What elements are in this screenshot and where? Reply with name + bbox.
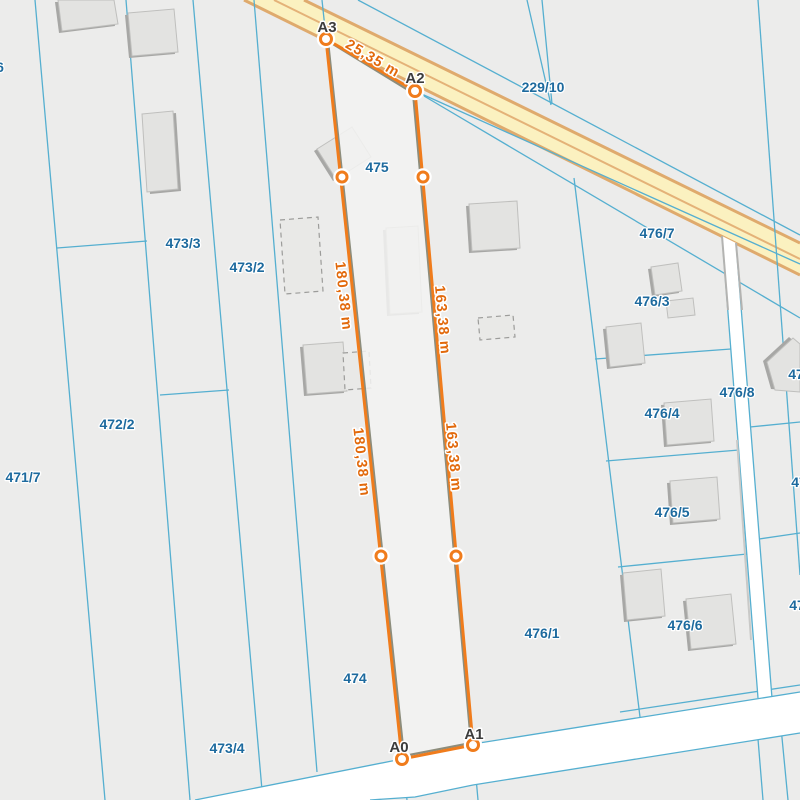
measurement-midpoint-marker[interactable] xyxy=(337,172,347,182)
vertex-label-A0: A0 xyxy=(389,739,408,756)
parcel-label-476-3: 476/3 xyxy=(634,293,669,309)
building xyxy=(142,111,178,192)
cadastral-map: 473/3 473/2 472/2 471/7 6 473/4 474 475 … xyxy=(0,0,800,800)
parcel-label-476-7: 476/7 xyxy=(639,225,674,241)
vertex-label-A3: A3 xyxy=(317,19,336,36)
building xyxy=(303,342,347,394)
vertex-label-A1: A1 xyxy=(464,726,483,743)
measurement-midpoint-marker[interactable] xyxy=(376,551,386,561)
parcel-label-partial-right: 47 xyxy=(789,597,800,613)
parcel-label-472-2: 472/2 xyxy=(99,416,134,432)
parcel-label-475: 475 xyxy=(365,159,389,175)
parcel-label-474: 474 xyxy=(343,670,367,686)
measurement-midpoint-marker[interactable] xyxy=(451,551,461,561)
map-canvas[interactable]: 473/3 473/2 472/2 471/7 6 473/4 474 475 … xyxy=(0,0,800,800)
building xyxy=(469,201,520,251)
parcel-label-476-6: 476/6 xyxy=(667,617,702,633)
building xyxy=(128,9,178,56)
parcel-label-473-2: 473/2 xyxy=(229,259,264,275)
parcel-label-476-5: 476/5 xyxy=(654,504,689,520)
building xyxy=(623,569,665,620)
parcel-label-476-8: 476/8 xyxy=(719,384,754,400)
parcel-label-476-4: 476/4 xyxy=(644,405,679,421)
parcel-label-partial-right: 47 xyxy=(791,474,800,490)
parcel-label-473-3: 473/3 xyxy=(165,235,200,251)
parcel-label-476-1: 476/1 xyxy=(524,625,559,641)
measurement-vertex-marker-A2[interactable] xyxy=(410,86,421,97)
building-outline-dashed xyxy=(478,315,515,340)
building xyxy=(651,263,682,295)
parcel-label-partial-left: 6 xyxy=(0,59,4,75)
building-outline-dashed xyxy=(280,217,323,294)
building xyxy=(666,298,695,318)
vertex-label-A2: A2 xyxy=(405,70,424,87)
parcel-label-229-10: 229/10 xyxy=(522,79,565,95)
parcel-label-partial-right: 47 xyxy=(788,366,800,382)
measurement-midpoint-marker[interactable] xyxy=(418,172,428,182)
parcel-label-471-7: 471/7 xyxy=(5,469,40,485)
building xyxy=(606,323,645,367)
parcel-label-473-4: 473/4 xyxy=(209,740,244,756)
